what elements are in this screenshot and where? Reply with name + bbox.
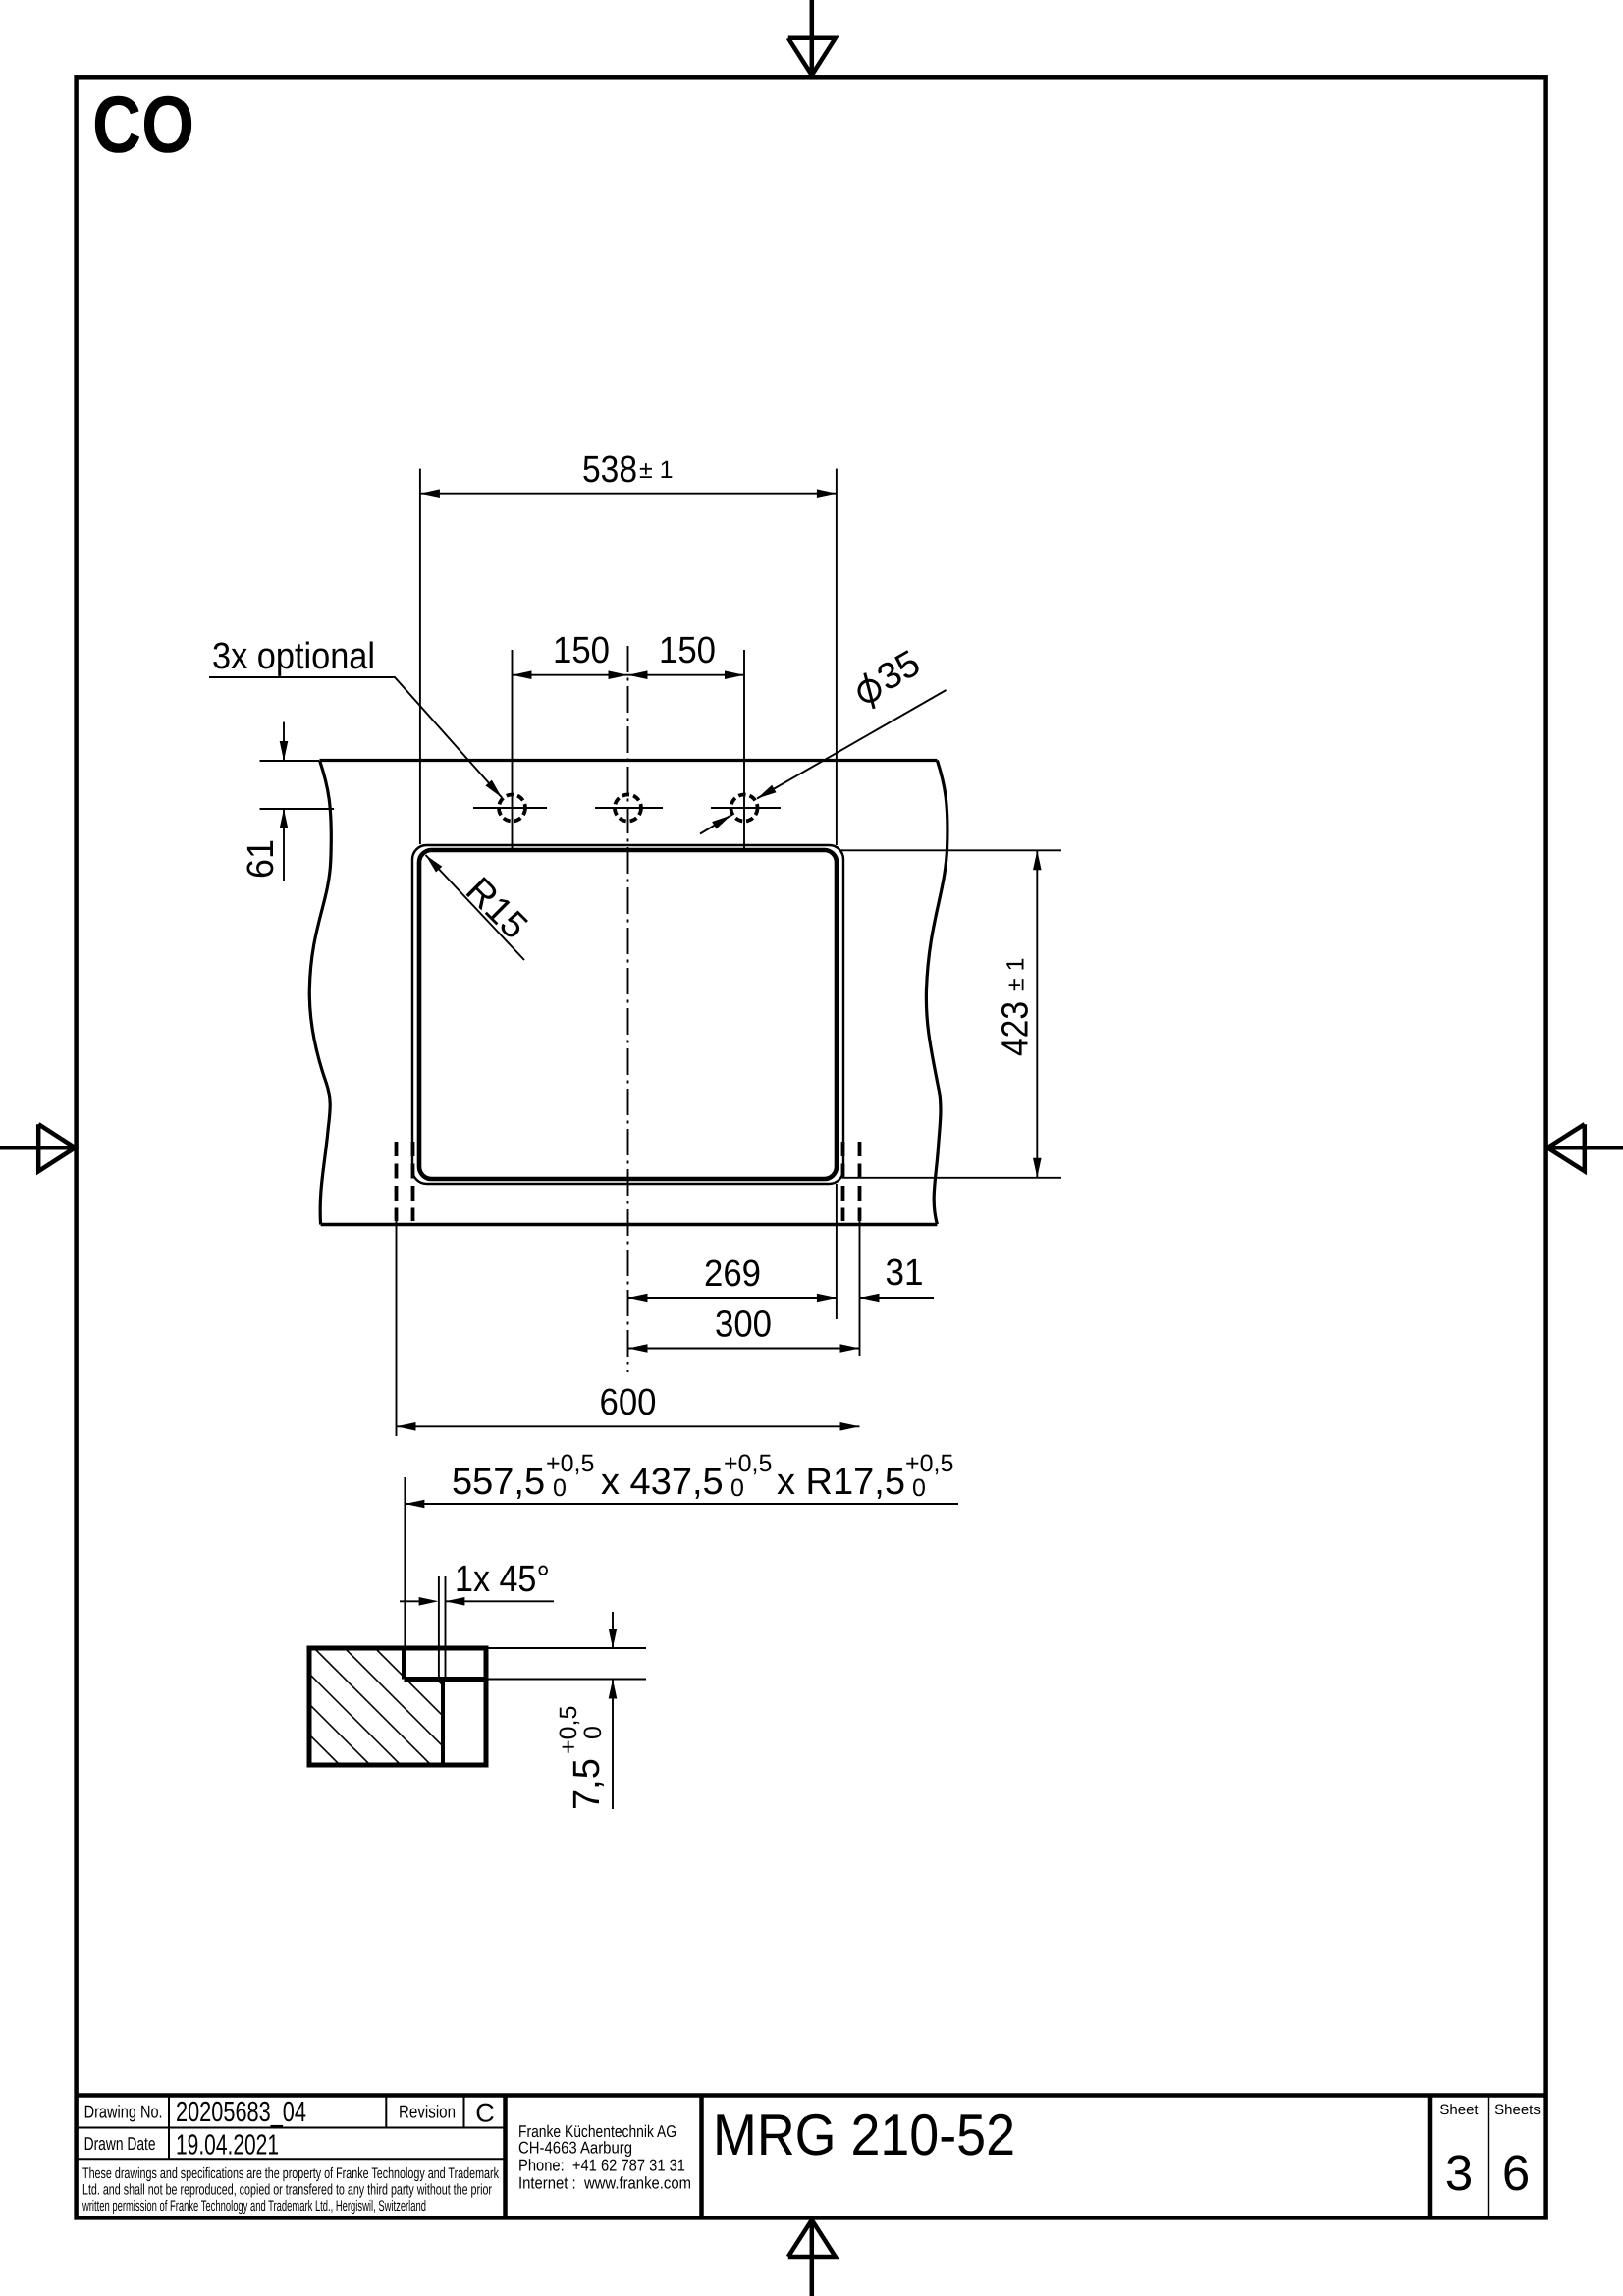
svg-text:± 1: ± 1 <box>1002 957 1030 991</box>
svg-text:1x 45°: 1x 45° <box>455 1559 550 1600</box>
svg-text:61: 61 <box>241 839 282 879</box>
svg-text:0: 0 <box>912 1474 926 1502</box>
svg-text:538: 538 <box>582 450 637 491</box>
svg-text:150: 150 <box>553 630 610 671</box>
svg-text:MRG 210-52: MRG 210-52 <box>713 2103 1015 2167</box>
svg-text:+0,5: +0,5 <box>724 1450 772 1477</box>
svg-text:20205683_04: 20205683_04 <box>176 2097 306 2128</box>
svg-text:+0,5: +0,5 <box>555 1706 582 1754</box>
svg-text:7,5: 7,5 <box>567 1758 608 1810</box>
svg-text:+0,5: +0,5 <box>546 1450 594 1477</box>
svg-text:Sheet: Sheet <box>1439 2102 1479 2118</box>
svg-text:Internet : www.franke.com: Internet : www.franke.com <box>518 2174 691 2193</box>
svg-text:Drawn Date: Drawn Date <box>84 2133 156 2154</box>
svg-text:6: 6 <box>1502 2145 1530 2201</box>
svg-text:600: 600 <box>600 1382 657 1423</box>
svg-text:written permission of Franke T: written permission of Franke Technology … <box>81 2198 426 2215</box>
svg-text:Ltd. and shall not be reproduc: Ltd. and shall not be reproduced, copied… <box>82 2182 492 2199</box>
svg-text:423: 423 <box>996 1001 1037 1056</box>
svg-text:31: 31 <box>886 1253 924 1294</box>
svg-text:0: 0 <box>579 1726 607 1739</box>
svg-text:19.04.2021: 19.04.2021 <box>176 2130 279 2162</box>
svg-text:Drawing No.: Drawing No. <box>84 2102 163 2122</box>
svg-text:CH-4663 Aarburg: CH-4663 Aarburg <box>518 2139 632 2158</box>
svg-text:Sheets: Sheets <box>1494 2102 1541 2118</box>
svg-text:C: C <box>475 2099 495 2128</box>
svg-text:3: 3 <box>1445 2145 1473 2201</box>
svg-text:+0,5: +0,5 <box>905 1450 953 1477</box>
svg-text:Revision: Revision <box>399 2102 456 2122</box>
svg-text:269: 269 <box>704 1254 761 1295</box>
svg-text:x R17,5: x R17,5 <box>777 1462 905 1503</box>
svg-text:x 437,5: x 437,5 <box>601 1462 724 1503</box>
svg-text:± 1: ± 1 <box>639 456 674 484</box>
svg-text:These drawings and specificati: These drawings and specifications are th… <box>82 2165 499 2182</box>
svg-text:150: 150 <box>659 630 716 671</box>
svg-text:CO: CO <box>92 80 194 170</box>
svg-text:557,5: 557,5 <box>452 1462 545 1503</box>
svg-text:Phone: +41 62 787 31 31: Phone: +41 62 787 31 31 <box>518 2157 685 2175</box>
svg-text:0: 0 <box>730 1474 744 1502</box>
svg-text:0: 0 <box>553 1474 567 1502</box>
svg-text:3x optional: 3x optional <box>212 636 375 677</box>
svg-text:300: 300 <box>715 1305 772 1346</box>
